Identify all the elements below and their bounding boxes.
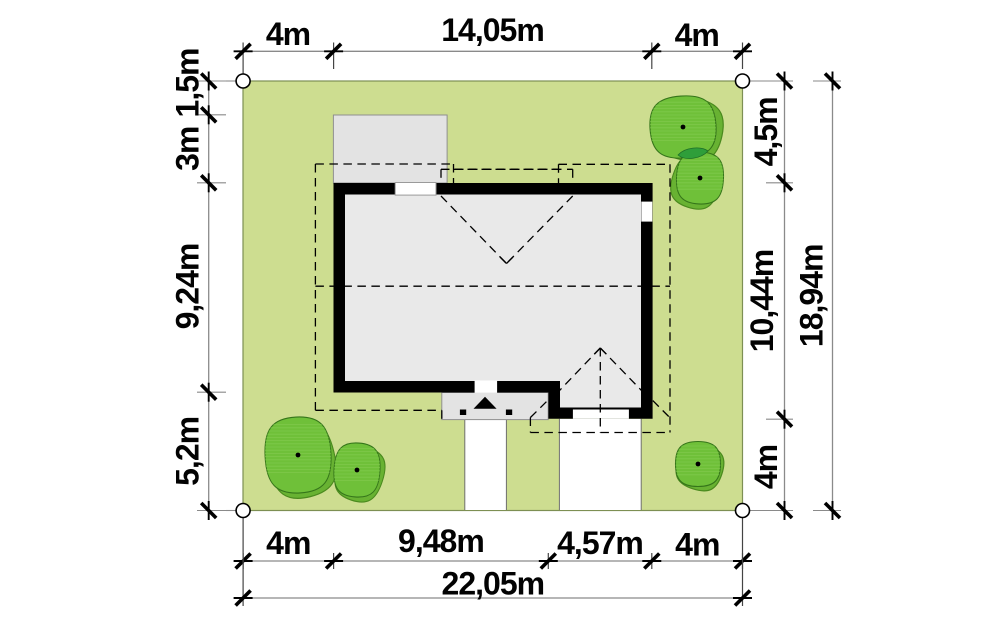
- svg-text:4m: 4m: [266, 16, 310, 52]
- svg-text:9,48m: 9,48m: [398, 523, 484, 559]
- svg-text:1,5m: 1,5m: [170, 49, 206, 118]
- svg-text:4m: 4m: [675, 17, 719, 53]
- svg-text:3m: 3m: [170, 127, 206, 171]
- svg-text:4m: 4m: [748, 445, 784, 489]
- svg-text:9,24m: 9,24m: [170, 244, 206, 330]
- svg-text:18,94m: 18,94m: [794, 245, 830, 348]
- svg-text:4,5m: 4,5m: [748, 97, 784, 166]
- svg-text:4,57m: 4,57m: [557, 525, 643, 561]
- svg-text:14,05m: 14,05m: [441, 12, 544, 48]
- svg-text:22,05m: 22,05m: [442, 565, 545, 601]
- svg-text:4m: 4m: [675, 527, 719, 563]
- svg-text:5,2m: 5,2m: [170, 417, 206, 486]
- svg-text:4m: 4m: [266, 525, 310, 561]
- svg-text:10,44m: 10,44m: [744, 250, 780, 353]
